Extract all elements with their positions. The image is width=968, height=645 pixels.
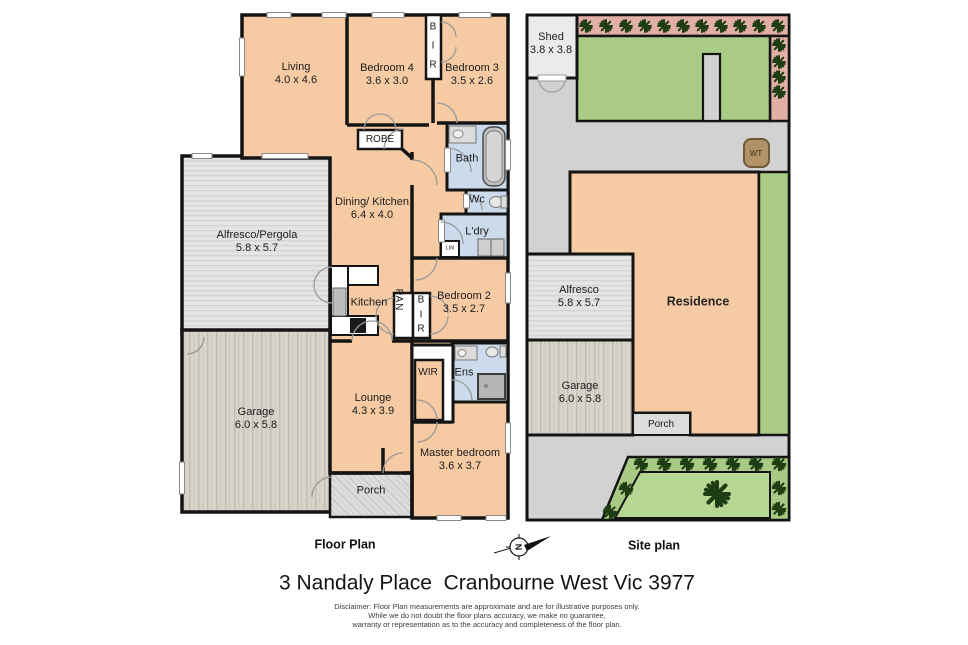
room-label-ens: Ens (455, 366, 474, 379)
room-label-bedroom4: Bedroom 43.6 x 3.0 (360, 62, 414, 88)
site-label-garage: Garage6.0 x 5.8 (559, 380, 601, 406)
compass-icon: N (494, 534, 551, 560)
floorplan-image: N Living4.0 x 4.6 Bedroom 43.6 x 3.0 Bed… (0, 0, 968, 645)
room-label-wir: WIR (418, 367, 437, 379)
room-label-porch: Porch (357, 484, 386, 497)
room-label-ldry: L'dry (465, 225, 489, 238)
room-label-dining-kitchen: Dining/ Kitchen6.4 x 4.0 (335, 196, 409, 222)
room-label-lin: LIN (446, 246, 455, 253)
room-label-kitchen: Kitchen (351, 296, 388, 309)
plans-drawing: N (0, 0, 968, 645)
disclaimer-text: Disclaimer: Floor Plan measurements are … (334, 602, 639, 629)
site-label-porch: Porch (648, 419, 674, 431)
room-label-lounge: Lounge4.3 x 3.9 (352, 392, 394, 418)
room-label-robe: ROBE (366, 134, 394, 146)
room-label-bir-bed2: BIR (417, 293, 426, 337)
room-label-bedroom2: Bedroom 23.5 x 2.7 (437, 290, 491, 316)
page-title: 3 Nandaly Place Cranbourne West Vic 3977 (279, 570, 695, 595)
room-label-wc: Wc (469, 193, 485, 206)
floor-plan-caption: Floor Plan (314, 538, 375, 553)
room-label-bedroom3: Bedroom 33.5 x 2.6 (445, 62, 499, 88)
floor-plan-drawing (180, 13, 511, 521)
site-label-wt: WT (750, 149, 762, 159)
room-label-bath: Bath (456, 152, 479, 165)
site-label-residence: Residence (667, 295, 730, 310)
room-label-master-bedroom: Master bedroom3.6 x 3.7 (420, 447, 500, 473)
room-label-alfresco-pergola: Alfresco/Pergola5.8 x 5.7 (217, 229, 298, 255)
room-label-pan: PAN (392, 289, 404, 312)
svg-text:N: N (513, 544, 523, 551)
site-plan-caption: Site plan (628, 539, 680, 554)
room-label-bir-top: BIR (429, 18, 438, 75)
room-label-living: Living4.0 x 4.6 (275, 61, 317, 87)
room-label-garage: Garage6.0 x 5.8 (235, 406, 277, 432)
site-label-alfresco: Alfresco5.8 x 5.7 (558, 284, 600, 310)
site-label-shed: Shed3.8 x 3.8 (530, 31, 572, 57)
site-plan-drawing (527, 15, 789, 520)
